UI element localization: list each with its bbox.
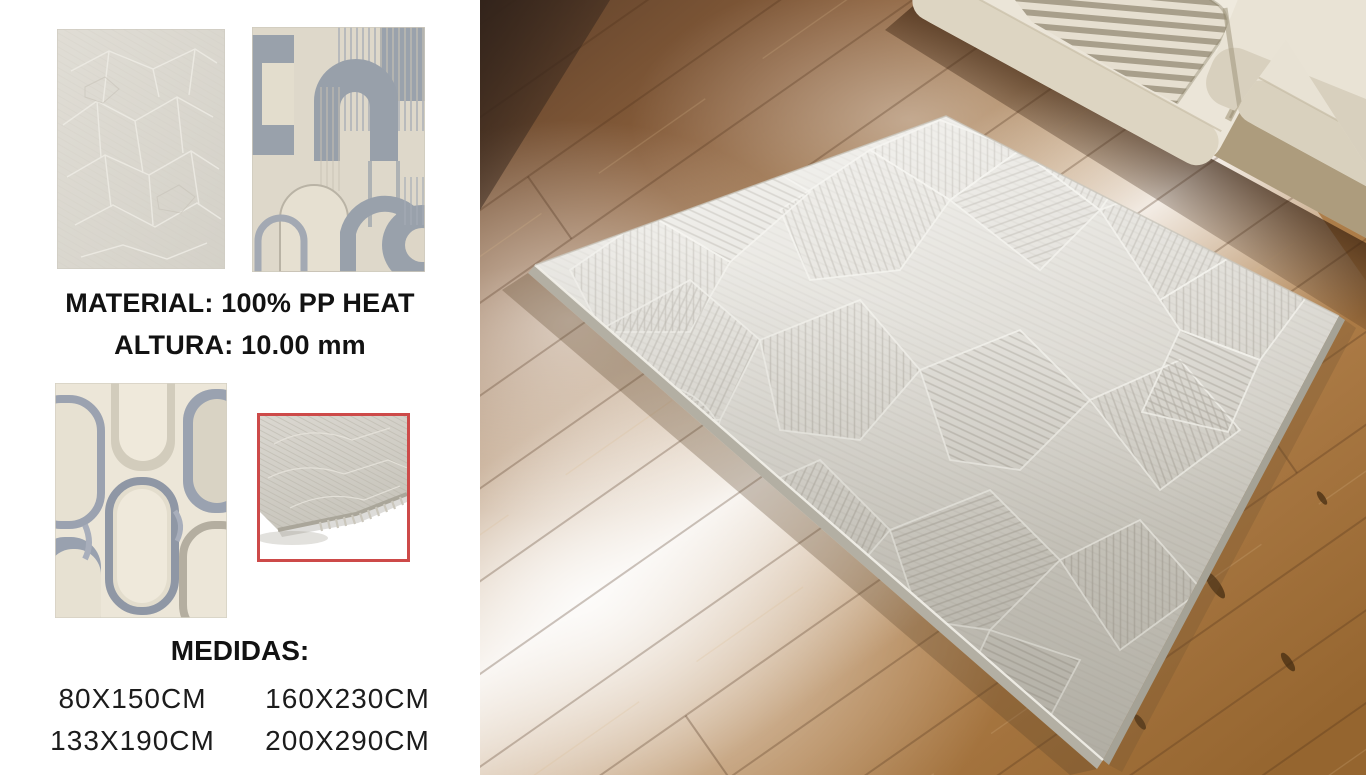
- thumbnail-rug-front[interactable]: [57, 29, 225, 269]
- rug-artdeco-art: [252, 27, 425, 272]
- product-sheet: MATERIAL: 100% PP HEAT ALTURA: 10.00 mm: [0, 0, 1366, 775]
- thumbnail-rug-pills[interactable]: [55, 383, 227, 618]
- size-option: 200X290CM: [240, 725, 455, 756]
- thumbnail-rug-corner-selected[interactable]: [257, 413, 410, 562]
- material-spec: MATERIAL: 100% PP HEAT: [0, 287, 480, 319]
- size-option: 133X190CM: [25, 725, 240, 756]
- rug-pills-art: [55, 383, 227, 618]
- lifestyle-photo: [480, 0, 1366, 775]
- rug-front-art: [57, 29, 225, 269]
- size-options: 80X150CM 160X230CM 133X190CM 200X290CM: [25, 683, 455, 756]
- size-option: 80X150CM: [25, 683, 240, 714]
- medidas-title: MEDIDAS:: [0, 635, 480, 667]
- info-panel: MATERIAL: 100% PP HEAT ALTURA: 10.00 mm: [0, 0, 480, 775]
- thumbnail-rug-artdeco[interactable]: [252, 27, 425, 272]
- altura-spec: ALTURA: 10.00 mm: [0, 329, 480, 361]
- rug-corner-art: [260, 416, 407, 559]
- size-option: 160X230CM: [240, 683, 455, 714]
